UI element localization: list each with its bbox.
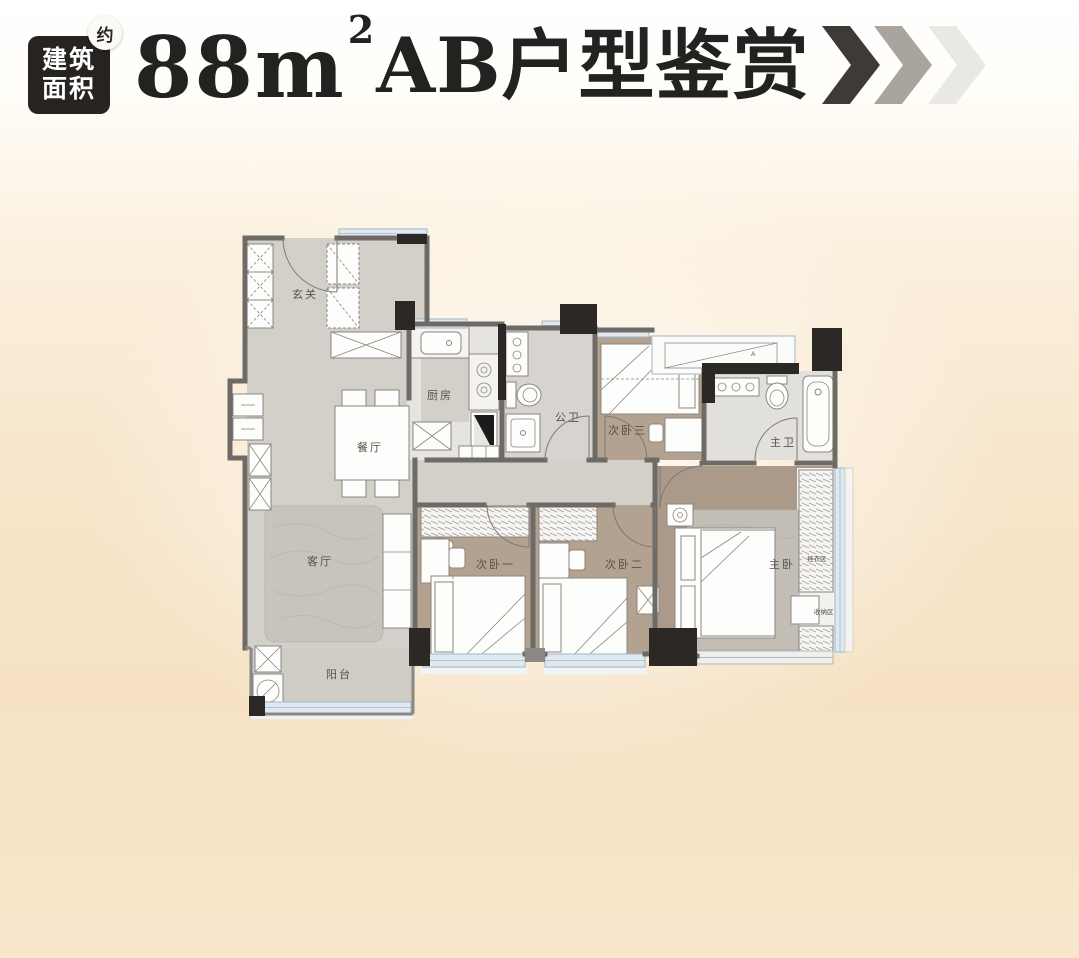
title-area-unit: m — [255, 18, 346, 118]
chevron-arrows — [822, 26, 1062, 106]
room-label-entry: 玄关 — [292, 287, 318, 301]
chevron-icon-2 — [874, 26, 932, 104]
room-label-dining: 餐厅 — [357, 440, 383, 454]
poster-page: 建筑 面积 约 88 m 2 AB户型鉴赏 — [0, 0, 1079, 958]
chevron-icon-1 — [822, 26, 880, 104]
room-label-balcony: 阳台 — [326, 667, 352, 681]
room-label-kitchen: 厨房 — [427, 389, 453, 402]
room-label-master-bath: 主卫 — [770, 436, 796, 449]
room-label-master-bedroom: 主卧 — [769, 558, 795, 571]
page-title: 88 m 2 AB户型鉴赏 — [134, 8, 809, 118]
badge-line1: 建筑 — [42, 46, 96, 75]
label-ac-mark: A — [751, 351, 756, 358]
room-label-bedroom3: 次卧三 — [608, 423, 647, 437]
chevron-icon-3 — [928, 26, 986, 104]
room-label-shared-bath: 公卫 — [555, 412, 581, 424]
title-area-sup: 2 — [348, 0, 374, 80]
title-area-number: 88 — [134, 18, 255, 118]
header: 建筑 面积 约 88 m 2 AB户型鉴赏 — [0, 0, 1079, 140]
label-hanging-zone: 挂衣区 — [807, 554, 827, 563]
room-label-bedroom1: 次卧一 — [476, 557, 515, 571]
label-storage-zone: 收纳区 — [814, 607, 834, 616]
bedroom1-furniture — [421, 507, 529, 658]
approx-circle: 约 — [88, 16, 122, 50]
floor-plan: 玄关 厨房 餐厅 公卫 次卧三 主卫 客厅 次卧一 次卧二 主卧 阳台 挂衣区 … — [222, 216, 876, 736]
room-label-living: 客厅 — [307, 554, 333, 568]
room-label-bedroom2: 次卧二 — [605, 557, 644, 571]
badge-line2: 面积 — [42, 75, 96, 104]
title-suffix: AB户型鉴赏 — [376, 14, 809, 118]
